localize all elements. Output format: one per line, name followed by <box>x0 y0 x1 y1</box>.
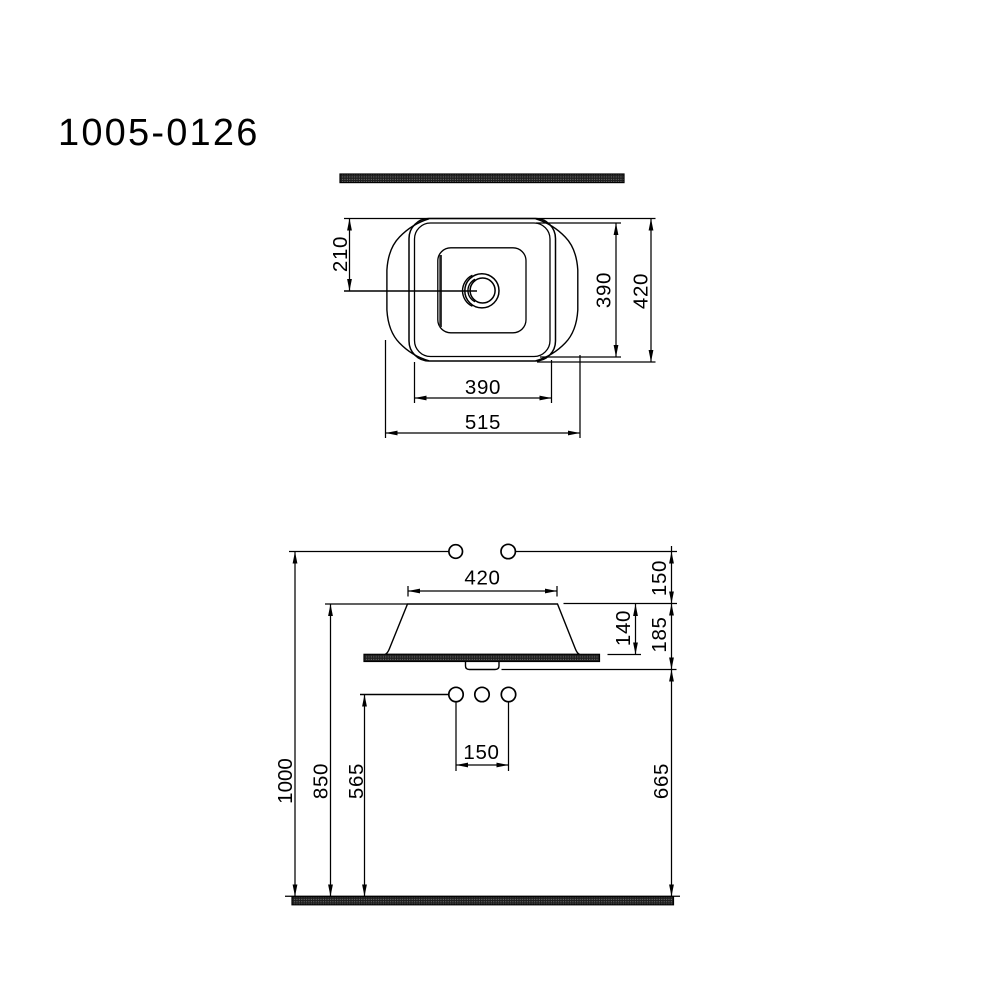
svg-text:150: 150 <box>648 560 671 596</box>
svg-text:1005-0126: 1005-0126 <box>58 112 260 154</box>
svg-text:420: 420 <box>464 567 500 590</box>
svg-text:665: 665 <box>650 763 673 799</box>
svg-text:150: 150 <box>463 741 499 764</box>
svg-text:850: 850 <box>310 763 333 799</box>
svg-text:140: 140 <box>612 610 635 646</box>
svg-text:515: 515 <box>465 411 501 434</box>
svg-text:420: 420 <box>630 273 653 309</box>
svg-text:185: 185 <box>648 616 671 652</box>
svg-text:390: 390 <box>465 376 501 399</box>
svg-text:210: 210 <box>329 236 352 272</box>
svg-text:1000: 1000 <box>274 758 297 804</box>
svg-text:390: 390 <box>593 272 616 308</box>
svg-text:565: 565 <box>345 763 368 799</box>
